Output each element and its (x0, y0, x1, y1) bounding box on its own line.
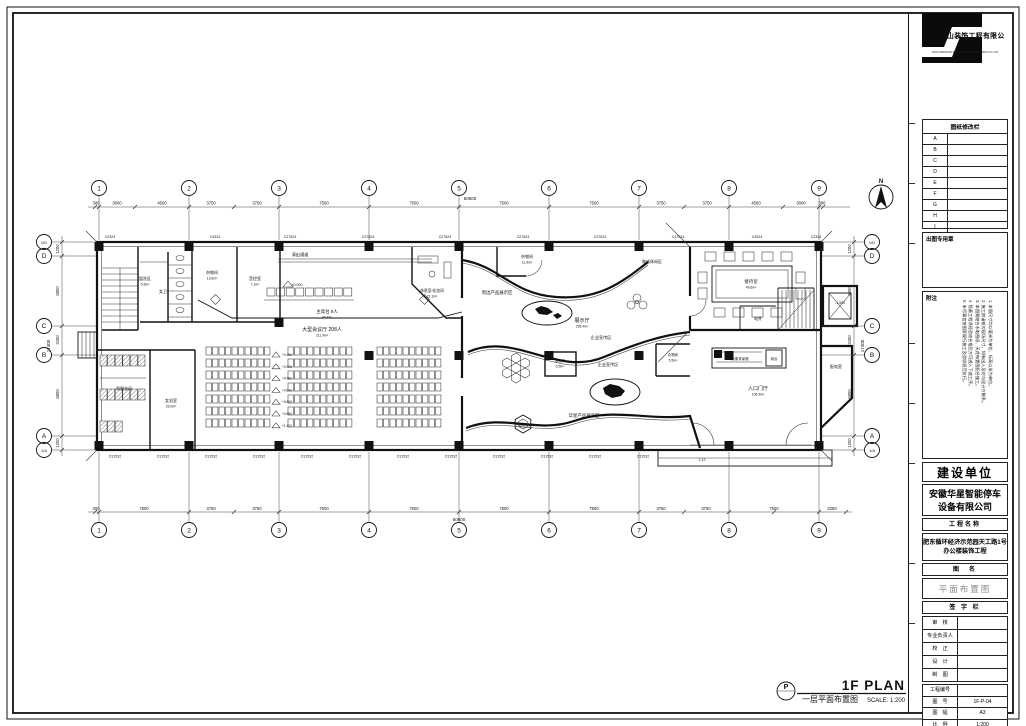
project-no-row: 工程编号 (923, 685, 1007, 696)
elevation-label: +0.960 (282, 412, 292, 416)
fixtures-layer: +0.160+0.320+0.480+0.640+0.800+0.960+1.1… (100, 255, 810, 433)
grid-bubble-bottom: 8 (727, 528, 731, 535)
notes-area: 附注 1. 本图尺寸均以毫米为单位，标高以米为单位。2. 施工前请核对现场尺寸，… (922, 291, 1008, 459)
note-line: 5. 未尽事宜按国家现行施工及验收规范执行。 (961, 300, 968, 450)
dim-bottom: 7500 (139, 506, 149, 511)
grid-bubble-bottom: 1 (97, 528, 101, 535)
grid-bubble-top: 5 (457, 186, 461, 193)
project-no-row-label: 工程编号 (923, 685, 958, 696)
grid-bubble-left: 1/D (41, 240, 47, 245)
dim-top: 4500 (751, 201, 761, 206)
revision-row: E (923, 177, 1007, 188)
window-label: C31532 (349, 455, 362, 459)
fold-mark (909, 243, 915, 244)
room-label: 女卫 (159, 288, 167, 294)
revision-row: F (923, 188, 1007, 199)
dim-right: 1200 (847, 244, 852, 254)
window-label: C27524 (672, 235, 685, 239)
plan-marker-symbol: P (784, 684, 789, 691)
room-label: 音控室 (249, 275, 261, 281)
room-labels-layer: 盥洗区5.5m²女卫杂物间13.6m²音控室7.1m²演出通道主席台 9人46.… (116, 251, 845, 462)
grid-bubble-right: B (870, 352, 874, 359)
signature-row-label: 设 计 (923, 656, 958, 668)
signature-row-value (958, 669, 1007, 681)
room-label: 周边产品展示区 (482, 289, 513, 296)
signature-row-label: 制 图 (923, 669, 958, 681)
window-label: C31532 (589, 455, 602, 459)
grid-bubble-left: 1/A (41, 448, 47, 453)
title-block-panel: 安徽半山装饰工程有限公司 ANHUI BANSHAN DECORATION EN… (908, 13, 1012, 713)
window-label: C31532 (493, 455, 506, 459)
room-area: 13.6m² (207, 277, 218, 281)
signature-row-value (958, 617, 1007, 629)
signature-header: 签 字 栏 (922, 601, 1008, 614)
revision-table: 图纸修改栏 ABCDEFGHI (922, 119, 1008, 229)
revision-row-label: B (923, 145, 948, 155)
revision-table-title: 图纸修改栏 (923, 120, 1007, 134)
drawing-sheet: N +0.160+0.320+0.480+0.640+0.800+0.960+1… (0, 0, 1026, 726)
window-label: C31532 (445, 455, 458, 459)
room-label: 大型会议厅 208人 (302, 326, 342, 333)
note-line: 2. 施工前请核对现场尺寸，如有出入及时与设计方联系。 (980, 300, 987, 450)
window-label: C31532 (157, 455, 170, 459)
revision-row-label: D (923, 167, 948, 177)
grid-bubble-right: C (870, 323, 875, 330)
room-label: 产品展示台 (516, 423, 530, 427)
meta-row: 比 例1:200 (923, 719, 1007, 726)
window-label: C31532 (397, 455, 410, 459)
revision-row-value (948, 178, 1007, 188)
revision-row-label: I (923, 222, 948, 232)
grid-bubble-top: 6 (547, 186, 551, 193)
window-label: C27524 (517, 235, 530, 239)
room-label: 男更衣间 (116, 385, 132, 391)
plan-title-en: 1F PLAN (842, 678, 905, 693)
grid-bubble-bottom: 6 (547, 528, 551, 535)
room-area: 5.5m² (669, 359, 679, 363)
window-label: C2324 (811, 235, 822, 239)
drawing-name: 平面布置图 (922, 578, 1008, 599)
room-label: 女浴室 (165, 397, 177, 403)
dim-bottom: 7500 (769, 506, 779, 511)
room-label: 电井 (754, 315, 762, 321)
revision-row-value (948, 211, 1007, 221)
signature-row: 校 正 (923, 642, 1007, 655)
room-label: 形象背景墙 (732, 356, 750, 361)
room-label: 华星产品展示区 (569, 412, 600, 419)
signature-row-label: 专业负责人 (923, 630, 958, 642)
notes-list: 1. 本图尺寸均以毫米为单位，标高以米为单位。2. 施工前请核对现场尺寸，如有出… (961, 300, 994, 450)
note-line: 4. 隐蔽工程须经验收合格后方可进入下道工序。 (967, 300, 974, 450)
room-label: 咖啡休闲区 (642, 258, 662, 264)
window-label: C27524 (362, 235, 375, 239)
dim-top: 3750 (656, 201, 666, 206)
signature-row: 设 计 (923, 655, 1007, 668)
grid-bubble-left: D (42, 253, 47, 260)
room-area: 106.9m² (752, 393, 765, 397)
level-label: 1:12 (699, 458, 706, 462)
level-label: -1.500 (835, 301, 845, 305)
project-name-line2: 办公楼装饰工程 (923, 547, 1007, 556)
dim-top: 4500 (157, 201, 167, 206)
sheet-frame (7, 7, 1019, 719)
dim-bottom: 3750 (206, 506, 216, 511)
elevation-label: +0.160 (282, 353, 292, 357)
client-header: 建设单位 (922, 462, 1008, 482)
grid-bubble-left: B (42, 352, 46, 359)
signature-row-label: 校 正 (923, 643, 958, 655)
dim-top: 7500 (319, 201, 329, 206)
grid-bubble-top: 2 (187, 186, 191, 193)
dim-bottom: 7500 (589, 506, 599, 511)
window-label: C27524 (284, 235, 297, 239)
revision-row-label: G (923, 200, 948, 210)
signature-row: 制 图 (923, 668, 1007, 681)
grid-bubble-right: A (870, 433, 875, 440)
drawing-meta-table: 工程编号图 号1F-P-04图 幅A3比 例1:200日 期2021.05.28 (922, 684, 1008, 726)
revision-row-value (948, 145, 1007, 155)
room-label: 杂物间 (521, 253, 533, 259)
grid-bubble-top: 7 (637, 186, 641, 193)
north-label: N (879, 179, 883, 185)
dim-top: 3000 (796, 201, 806, 206)
revision-row: B (923, 144, 1007, 155)
elevation-label: +0.800 (282, 400, 292, 404)
dim-right: 2400 (847, 335, 852, 345)
grid-bubble-top: 8 (727, 186, 731, 193)
window-label: C27524 (594, 235, 607, 239)
dim-left: 2400 (55, 335, 60, 345)
room-label: 主席台 9人 (316, 308, 338, 315)
dim-bottom: 7500 (499, 506, 509, 511)
dim-top: 7500 (409, 201, 419, 206)
stamp-label: 出图专用章 (923, 233, 1007, 245)
grid-bubble-bottom: 9 (817, 528, 821, 535)
fold-mark (909, 563, 915, 564)
meta-row-label: 图 号 (923, 697, 958, 708)
dim-top: 7500 (499, 201, 509, 206)
room-area: 5.5m² (556, 365, 566, 369)
grid-bubble-top: 9 (817, 186, 821, 193)
meta-row-label: 比 例 (923, 720, 958, 726)
window-label: C27524 (439, 235, 452, 239)
window-label: C31532 (109, 455, 122, 459)
room-label: 前台 (771, 356, 778, 361)
dim-total-width: 60600 (464, 196, 477, 201)
plan-title-zh: 一层平面布置图 (802, 694, 858, 704)
revision-row-value (948, 134, 1007, 144)
revision-row-label: E (923, 178, 948, 188)
company-logo-block: 安徽半山装饰工程有限公司 ANHUI BANSHAN DECORATION EN… (922, 13, 1008, 117)
plan-scale-label: SCALE: 1:200 (867, 698, 906, 704)
dim-bottom: 3750 (656, 506, 666, 511)
stamp-area: 出图专用章 (922, 232, 1008, 288)
window-label: C31532 (637, 455, 650, 459)
project-name: 肥东循环经济示范园天工路1号 办公楼装饰工程 (922, 533, 1008, 561)
revision-row-value (948, 200, 1007, 210)
room-label: 杂物间 (206, 269, 218, 275)
dim-right: 6800 (847, 389, 852, 399)
meta-row-value: 1F-P-04 (958, 697, 1007, 708)
note-line: 3. 本图需结合水电图纸、天花布置图配合施工。 (974, 300, 981, 450)
meta-row-value: A3 (958, 708, 1007, 719)
grid-bubble-bottom: 5 (457, 528, 461, 535)
meta-row-value: 1:200 (958, 720, 1007, 726)
room-label: 杂物间 (555, 358, 566, 363)
level-label: ±0.000 (292, 283, 303, 287)
window-label: C31532 (205, 455, 218, 459)
north-arrow: N (869, 179, 893, 209)
room-area: 5.5m² (141, 283, 151, 287)
revision-row: G (923, 199, 1007, 210)
client-name-line2: 设备有限公司 (923, 501, 1007, 514)
fold-mark (909, 123, 915, 124)
dim-top: 7500 (589, 201, 599, 206)
signature-row-value (958, 656, 1007, 668)
fold-mark (909, 343, 915, 344)
room-label: 杂物间 (668, 352, 679, 357)
dim-right: 1200 (847, 438, 852, 448)
grid-bubble-top: 4 (367, 186, 371, 193)
room-label: 接待室 (744, 278, 758, 285)
dim-left: 5800 (55, 286, 60, 296)
window-label: C2324 (105, 235, 116, 239)
building-exterior (86, 231, 832, 461)
dim-bottom: 3750 (701, 506, 711, 511)
revision-row-value (948, 222, 1007, 232)
client-name-line1: 安徽华星智能停车 (923, 488, 1007, 501)
grid-bubble-right: 1/D (869, 240, 875, 245)
grid-bubble-bottom: 2 (187, 528, 191, 535)
fold-mark (909, 463, 915, 464)
revision-row: H (923, 210, 1007, 221)
room-area: 7.1m² (251, 283, 261, 287)
room-label: 入口门厅 (748, 385, 768, 392)
project-header: 工程名称 (922, 518, 1008, 531)
dim-left: 1200 (55, 438, 60, 448)
dim-left: 1200 (55, 244, 60, 254)
elevation-label: +0.480 (282, 377, 292, 381)
room-area: 211.9m² (316, 334, 329, 338)
signature-row-value (958, 630, 1007, 642)
revision-row: D (923, 166, 1007, 177)
elevation-label: +0.320 (282, 365, 292, 369)
signature-row: 审 核 (923, 617, 1007, 629)
room-area: 295.4m² (576, 325, 589, 329)
dim-right: 5800 (847, 286, 852, 296)
grid-bubble-top: 3 (277, 186, 281, 193)
meta-row: 图 幅A3 (923, 707, 1007, 719)
room-label: 休息室/化妆间 (420, 288, 444, 293)
grid-bubble-right: D (870, 253, 875, 260)
fold-mark (909, 623, 915, 624)
window-label: C31532 (541, 455, 554, 459)
grid-bubble-left: C (42, 323, 47, 330)
revision-row-label: F (923, 189, 948, 199)
note-line: 1. 本图尺寸均以毫米为单位，标高以米为单位。 (987, 300, 994, 450)
room-area: 21.1m² (427, 295, 438, 299)
project-no-row-value (958, 685, 1007, 696)
room-area: 46.4m² (322, 316, 333, 320)
grid-bubble-right: 1/A (869, 448, 875, 453)
grid-bubble-bottom: 4 (367, 528, 371, 535)
room-label: 企业宣传区 (591, 334, 612, 341)
revision-row: C (923, 155, 1007, 166)
client-name: 安徽华星智能停车 设备有限公司 (922, 484, 1008, 516)
revision-row: A (923, 134, 1007, 144)
signature-row: 专业负责人 (923, 629, 1007, 642)
company-name-en: ANHUI BANSHAN DECORATION ENGINEERING CO.… (926, 50, 1003, 54)
company-logo-icon (922, 13, 982, 63)
room-label: 展示厅 (574, 318, 589, 324)
fold-mark (909, 403, 915, 404)
floor-plan-svg: N +0.160+0.320+0.480+0.640+0.800+0.960+1… (0, 0, 1026, 726)
room-area: 23.0m² (166, 405, 177, 409)
room-label: 盥洗区 (139, 275, 151, 281)
revision-row-label: C (923, 156, 948, 166)
drawing-name-header: 图 名 (922, 563, 1008, 576)
project-name-line1: 肥东循环经济示范园天工路1号 (923, 538, 1007, 547)
dim-top: 3750 (702, 201, 712, 206)
revision-row-value (948, 167, 1007, 177)
window-label: C4324 (752, 235, 763, 239)
elevation-label: +0.640 (282, 388, 292, 392)
columns-layer (95, 242, 824, 450)
dim-top: 3750 (206, 201, 216, 206)
dim-top: 3750 (252, 201, 262, 206)
dim-left: 6800 (55, 389, 60, 399)
drawing-title: P 一层平面布置图 1F PLAN SCALE: 1:200 (777, 678, 906, 704)
revision-row-label: H (923, 211, 948, 221)
dim-top: 300 (819, 201, 827, 206)
fold-mark (909, 183, 915, 184)
revision-row-label: A (923, 134, 948, 144)
window-label: C31532 (301, 455, 314, 459)
dim-bottom: 7500 (409, 506, 419, 511)
room-area: 49.6m² (746, 286, 757, 290)
room-label: 演出通道 (292, 251, 310, 258)
revision-row-value (948, 156, 1007, 166)
signature-row-label: 审 核 (923, 617, 958, 629)
dim-bottom: 3750 (252, 506, 262, 511)
dim-bottom: 7500 (319, 506, 329, 511)
elevation-label: +1.120 (282, 424, 292, 428)
grid-bubble-left: A (42, 433, 47, 440)
revision-row: I (923, 221, 1007, 232)
room-area: 11.9m² (522, 261, 533, 265)
grid-bubble-bottom: 7 (637, 528, 641, 535)
grid-bubble-top: 1 (97, 186, 101, 193)
dim-top: 3000 (112, 201, 122, 206)
dim-total-height: 17400 (860, 339, 865, 352)
meta-row: 图 号1F-P-04 (923, 696, 1007, 708)
window-label: C31532 (253, 455, 266, 459)
revision-row-value (948, 189, 1007, 199)
room-label: 企业宣传区 (598, 361, 619, 368)
meta-row-label: 图 幅 (923, 708, 958, 719)
signature-row-value (958, 643, 1007, 655)
window-label: C4324 (210, 235, 221, 239)
signature-table: 审 核专业负责人校 正设 计制 图 (922, 616, 1008, 682)
dim-bottom: 2250 (827, 506, 837, 511)
room-label: 配电室 (830, 363, 842, 369)
grid-bubble-bottom: 3 (277, 528, 281, 535)
